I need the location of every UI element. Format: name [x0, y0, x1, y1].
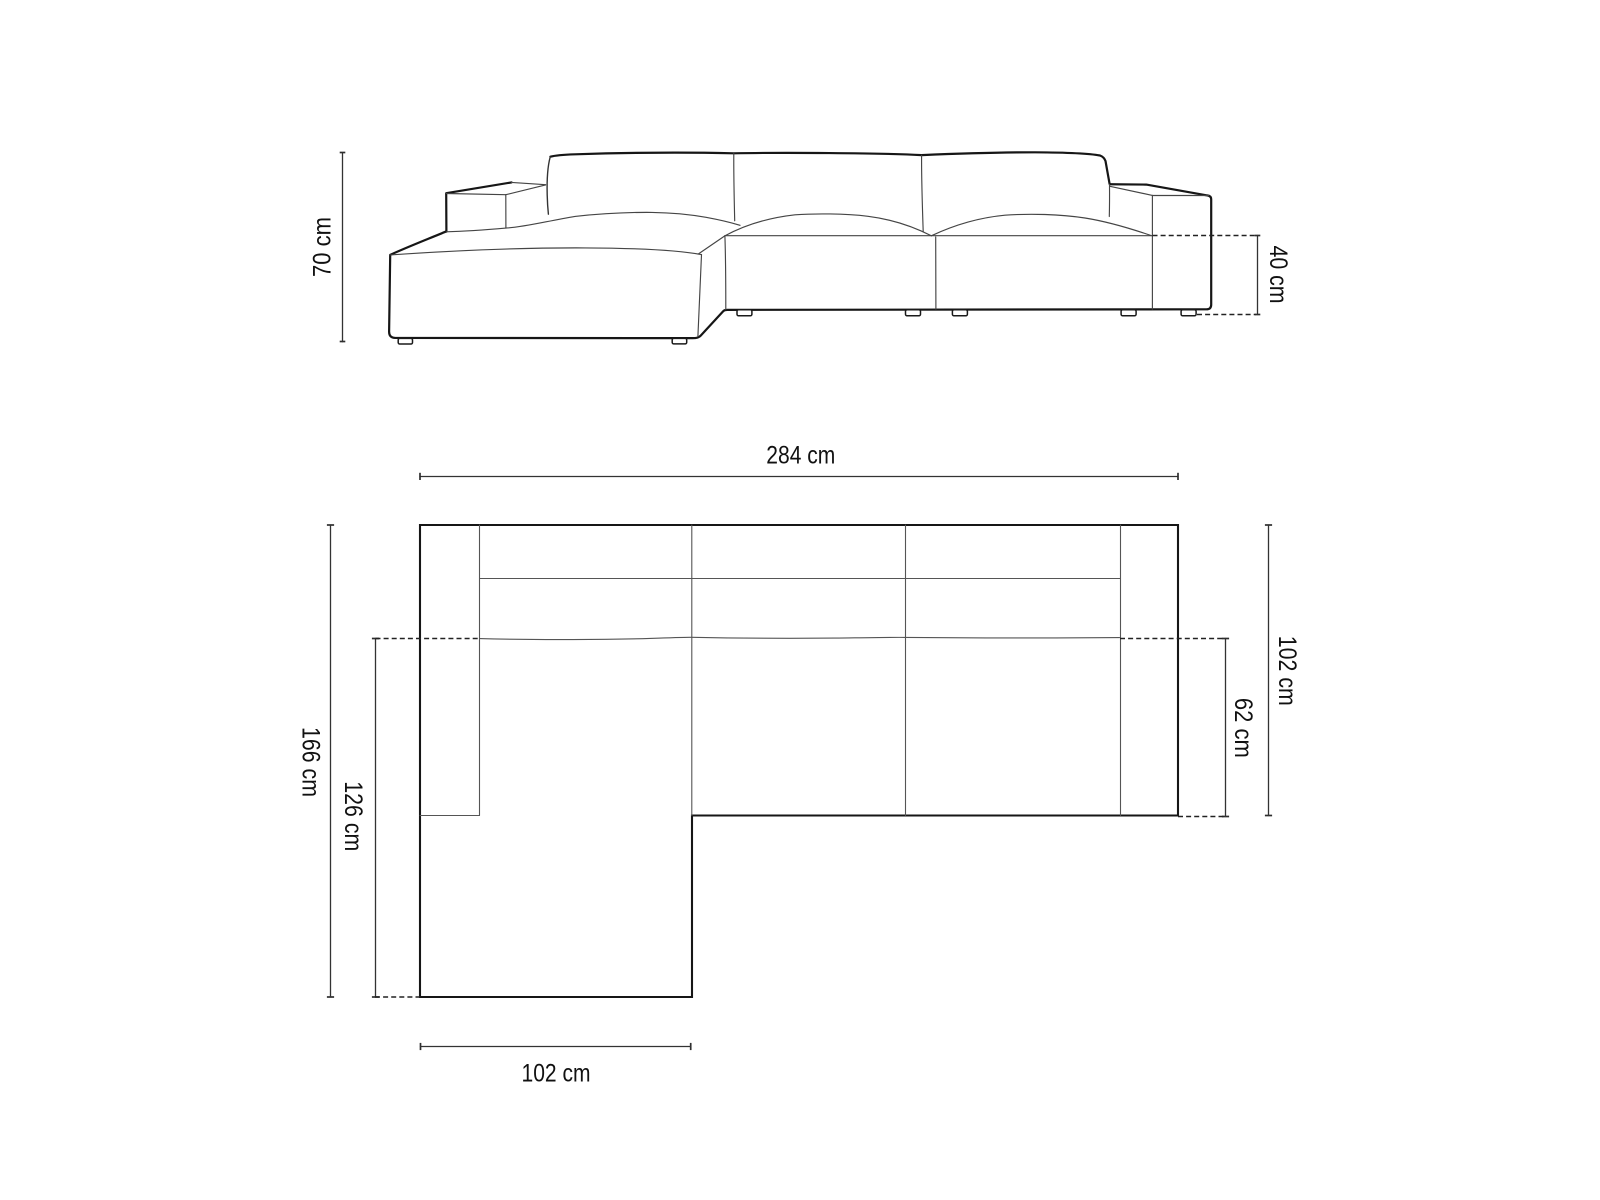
svg-text:40 cm: 40 cm: [1264, 246, 1292, 304]
svg-text:126 cm: 126 cm: [339, 781, 367, 851]
svg-text:102 cm: 102 cm: [1273, 636, 1301, 706]
svg-text:284 cm: 284 cm: [766, 442, 835, 470]
svg-text:62 cm: 62 cm: [1229, 698, 1257, 758]
svg-text:166 cm: 166 cm: [297, 727, 325, 797]
svg-text:70 cm: 70 cm: [309, 217, 337, 277]
svg-text:102 cm: 102 cm: [522, 1060, 591, 1088]
